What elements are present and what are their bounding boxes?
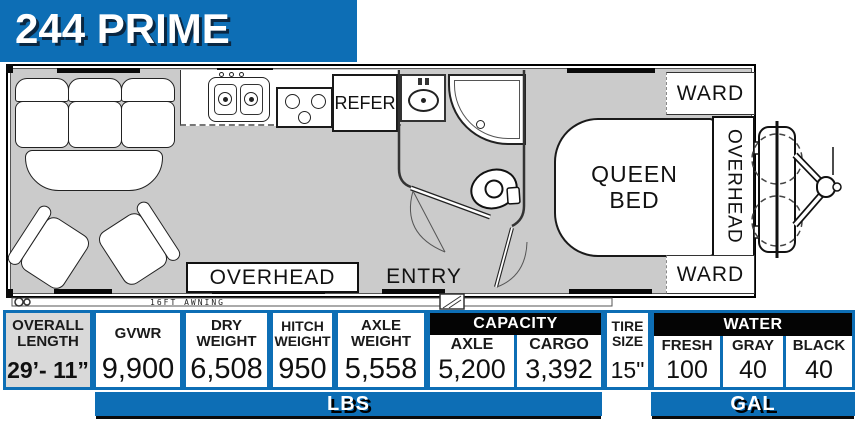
shower-drain (476, 120, 485, 129)
fresh-water-cell: FRESH 100 (654, 336, 720, 387)
gvwr-value: 9,900 (102, 353, 175, 386)
propane-tank-tray (759, 127, 795, 252)
water-group: WATER FRESH 100 GRAY 40 BLACK 40 (651, 310, 855, 390)
overall-length-value: 29’- 11” (7, 357, 89, 384)
axle-capacity-cell: AXLE 5,200 (430, 335, 514, 387)
entry-label-wrap: ENTRY (374, 264, 474, 290)
stove-icon (276, 87, 333, 128)
ward-bottom-label: WARD (677, 263, 744, 287)
model-banner: 244 PRIME (0, 0, 357, 62)
dry-weight-value: 6,508 (190, 353, 263, 386)
sofa-cushion (15, 78, 69, 102)
gal-label: GAL (730, 393, 775, 416)
overhead-cabinet-galley: OVERHEAD (186, 262, 359, 293)
lbs-label: LBS (327, 393, 370, 416)
ward-bottom: WARD (666, 255, 755, 294)
floorplan: REFER QUEEN BED OVERHEAD WARD WARD (6, 64, 756, 298)
gray-water-label: GRAY (732, 337, 774, 354)
burner (298, 111, 311, 124)
sofa-cushion (15, 101, 69, 148)
tire-size-value: 15" (611, 357, 645, 384)
gvwr-cell: GVWR 9,900 (93, 310, 183, 390)
axle-weight-cell: AXLE WEIGHT 5,558 (335, 310, 427, 390)
queen-bed-label: QUEEN BED (580, 162, 690, 214)
awning-bar: 16FT AWNING (12, 298, 612, 307)
axle-weight-label: AXLE WEIGHT (338, 313, 424, 353)
overhead-bedroom-label: OVERHEAD (723, 129, 745, 244)
corner-post (6, 289, 13, 298)
fresh-water-label: FRESH (662, 337, 713, 354)
sink-basin (240, 84, 263, 115)
axle-capacity-value: 5,200 (438, 354, 506, 385)
hitch-weight-label: HITCH WEIGHT (273, 313, 332, 353)
entry-label: ENTRY (386, 265, 462, 289)
refer-box: REFER (332, 74, 398, 132)
awning-crank-icon (24, 299, 30, 305)
propane-tank-icon (752, 134, 802, 184)
black-water-label: BLACK (793, 337, 846, 354)
gal-bar: GAL (651, 392, 855, 416)
sink-icon (208, 77, 270, 122)
black-water-cell: BLACK 40 (783, 336, 852, 387)
model-title: 244 PRIME (15, 5, 230, 53)
cargo-capacity-cell: CARGO 3,392 (514, 335, 601, 387)
wall-segment (54, 289, 112, 294)
overall-length-label: OVERALL LENGTH (6, 313, 90, 353)
vanity-sink-icon (400, 74, 446, 122)
refer-label: REFER (334, 93, 395, 114)
corner-post (6, 64, 13, 73)
tire-size-label: TIRE SIZE (607, 313, 648, 353)
sofa-seat (15, 101, 174, 148)
sink-drain-dot (223, 97, 228, 102)
ward-top: WARD (666, 72, 755, 115)
spec-table: OVERALL LENGTH 29’- 11” GVWR 9,900 DRY W… (0, 310, 859, 428)
capacity-header: CAPACITY (430, 313, 601, 335)
dry-weight-label: DRY WEIGHT (186, 313, 267, 353)
vanity-drain (421, 98, 426, 103)
gray-water-cell: GRAY 40 (720, 336, 783, 387)
dinette-table (25, 150, 163, 191)
sofa-cushion (68, 101, 122, 148)
burner (311, 94, 326, 109)
overhead-cabinet-bedroom: OVERHEAD (712, 116, 755, 257)
wall-segment (567, 68, 655, 73)
overhead-galley-label: OVERHEAD (210, 266, 336, 290)
wall-segment (57, 68, 140, 73)
rv-spec-sheet: 244 PRIME (0, 0, 859, 428)
hitch-weight-value: 950 (278, 353, 326, 386)
burner (285, 94, 300, 109)
cargo-capacity-value: 3,392 (525, 354, 593, 385)
sofa-back (15, 78, 174, 102)
wall-segment (569, 289, 652, 294)
lbs-bar: LBS (95, 392, 602, 416)
hitch-weight-cell: HITCH WEIGHT 950 (270, 310, 335, 390)
black-water-value: 40 (805, 356, 833, 385)
sofa-cushion (121, 78, 175, 102)
awning-label: 16FT AWNING (150, 298, 225, 307)
dry-weight-cell: DRY WEIGHT 6,508 (183, 310, 270, 390)
axle-weight-value: 5,558 (345, 353, 418, 386)
overall-length-cell: OVERALL LENGTH 29’- 11” (3, 310, 93, 390)
gray-water-value: 40 (739, 356, 767, 385)
axle-capacity-label: AXLE (451, 336, 494, 354)
vanity-faucet (425, 78, 429, 85)
awning-crank-icon (15, 298, 23, 306)
fresh-water-value: 100 (666, 356, 708, 385)
queen-bed: QUEEN BED (554, 118, 715, 257)
capacity-group: CAPACITY AXLE 5,200 CARGO 3,392 (427, 310, 604, 390)
coupler-icon (817, 177, 835, 197)
vanity-faucet (418, 78, 422, 85)
sofa-cushion (121, 101, 175, 148)
propane-tank-icon (752, 196, 802, 246)
ward-top-label: WARD (677, 82, 744, 106)
sink-basin (214, 84, 237, 115)
sofa-cushion (68, 78, 122, 102)
sink-drain-dot (249, 97, 254, 102)
tire-size-cell: TIRE SIZE 15" (604, 310, 651, 390)
hitch-icon (752, 121, 841, 258)
gvwr-label: GVWR (115, 313, 162, 353)
water-header: WATER (654, 313, 852, 336)
cargo-capacity-label: CARGO (529, 336, 589, 354)
